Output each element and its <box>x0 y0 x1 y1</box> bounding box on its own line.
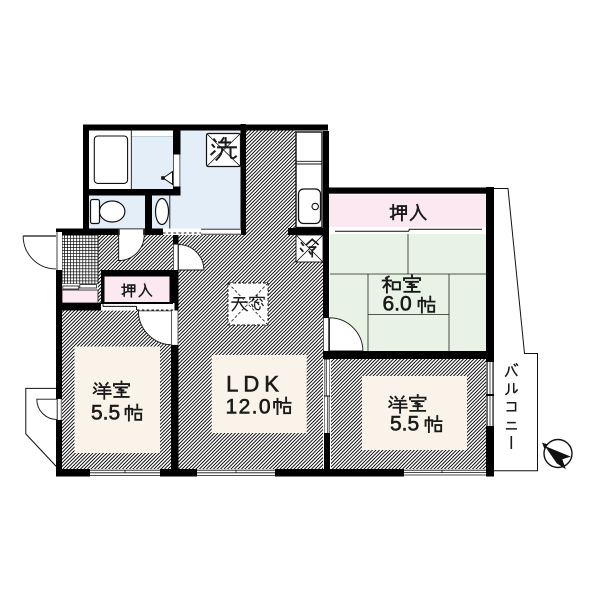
svg-text:LDK: LDK <box>226 372 284 397</box>
svg-text:5.5: 5.5 <box>91 402 120 425</box>
svg-text:12.0: 12.0 <box>226 396 272 419</box>
svg-text:6.0: 6.0 <box>383 293 412 316</box>
svg-text:5.5: 5.5 <box>390 413 419 436</box>
